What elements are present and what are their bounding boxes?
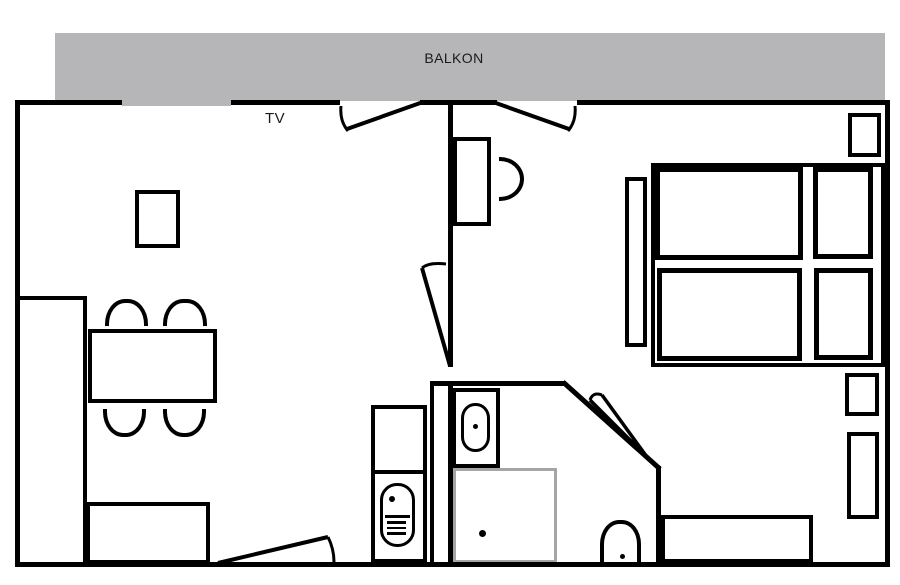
wall-bottom	[15, 562, 890, 567]
balcony-door-right-leaf	[493, 102, 569, 129]
wall-bathroom-top	[430, 381, 565, 386]
balcony-label: BALKON	[399, 50, 509, 66]
walls-and-doors	[0, 0, 900, 585]
bedroom-door-arc	[422, 264, 446, 269]
wall-top-divider-stub	[420, 100, 497, 105]
entrance-door-arc	[328, 537, 334, 562]
wall-divider-upper	[448, 100, 453, 367]
floor-plan: BALKON TV	[0, 0, 900, 585]
entrance-door-leaf	[218, 537, 328, 563]
bathroom-door-leaf	[590, 395, 647, 457]
wall-bathroom-right	[656, 466, 661, 562]
tv-label: TV	[260, 110, 290, 127]
wall-top-mid	[231, 100, 340, 105]
wall-left	[15, 100, 20, 567]
bathroom-door-arc	[590, 394, 602, 400]
wall-right	[885, 100, 890, 567]
bedroom-door-leaf	[422, 268, 450, 366]
wall-top-left	[15, 100, 122, 105]
balcony-door-left-leaf	[347, 102, 423, 129]
wall-kitchen-side	[430, 386, 434, 562]
balcony-door-right-arc	[568, 106, 575, 131]
wall-divider-lower	[448, 381, 453, 562]
wall-top-right	[577, 100, 890, 105]
balcony-door-left-arc	[341, 106, 348, 131]
